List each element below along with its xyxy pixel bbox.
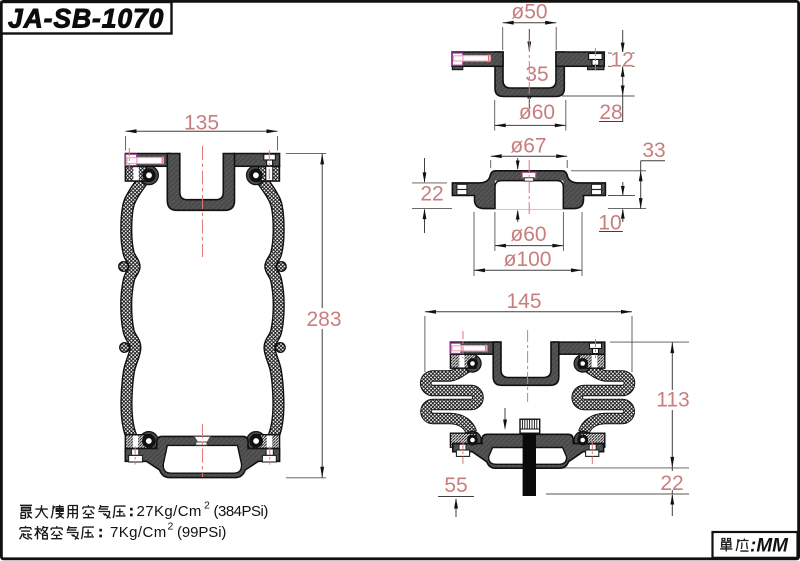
svg-text::MM: :MM [750,536,789,557]
svg-text:(99PSi): (99PSi) [177,524,226,541]
svg-text:ø100: ø100 [504,248,552,271]
svg-text:7Kg/Cm: 7Kg/Cm [110,524,167,541]
svg-text:ø50: ø50 [511,1,547,24]
svg-text:ø67: ø67 [510,135,546,158]
svg-text:2: 2 [204,500,210,512]
svg-text:2: 2 [168,521,174,533]
svg-text:135: 135 [184,112,219,135]
svg-text:283: 283 [306,308,341,331]
svg-text:22: 22 [420,183,443,206]
svg-text:28: 28 [599,101,622,124]
svg-text:145: 145 [506,290,541,313]
svg-text:33: 33 [642,139,665,162]
svg-text:ø60: ø60 [519,101,555,124]
svg-text:ø60: ø60 [510,223,546,246]
svg-text:55: 55 [444,474,467,497]
svg-text:22: 22 [660,472,683,495]
svg-text:113: 113 [656,389,689,412]
svg-text:12: 12 [610,49,633,72]
svg-text:(384PSi): (384PSi) [214,503,269,520]
svg-text:27Kg/Cm: 27Kg/Cm [137,503,202,520]
svg-text:JA-SB-1070: JA-SB-1070 [8,4,164,34]
